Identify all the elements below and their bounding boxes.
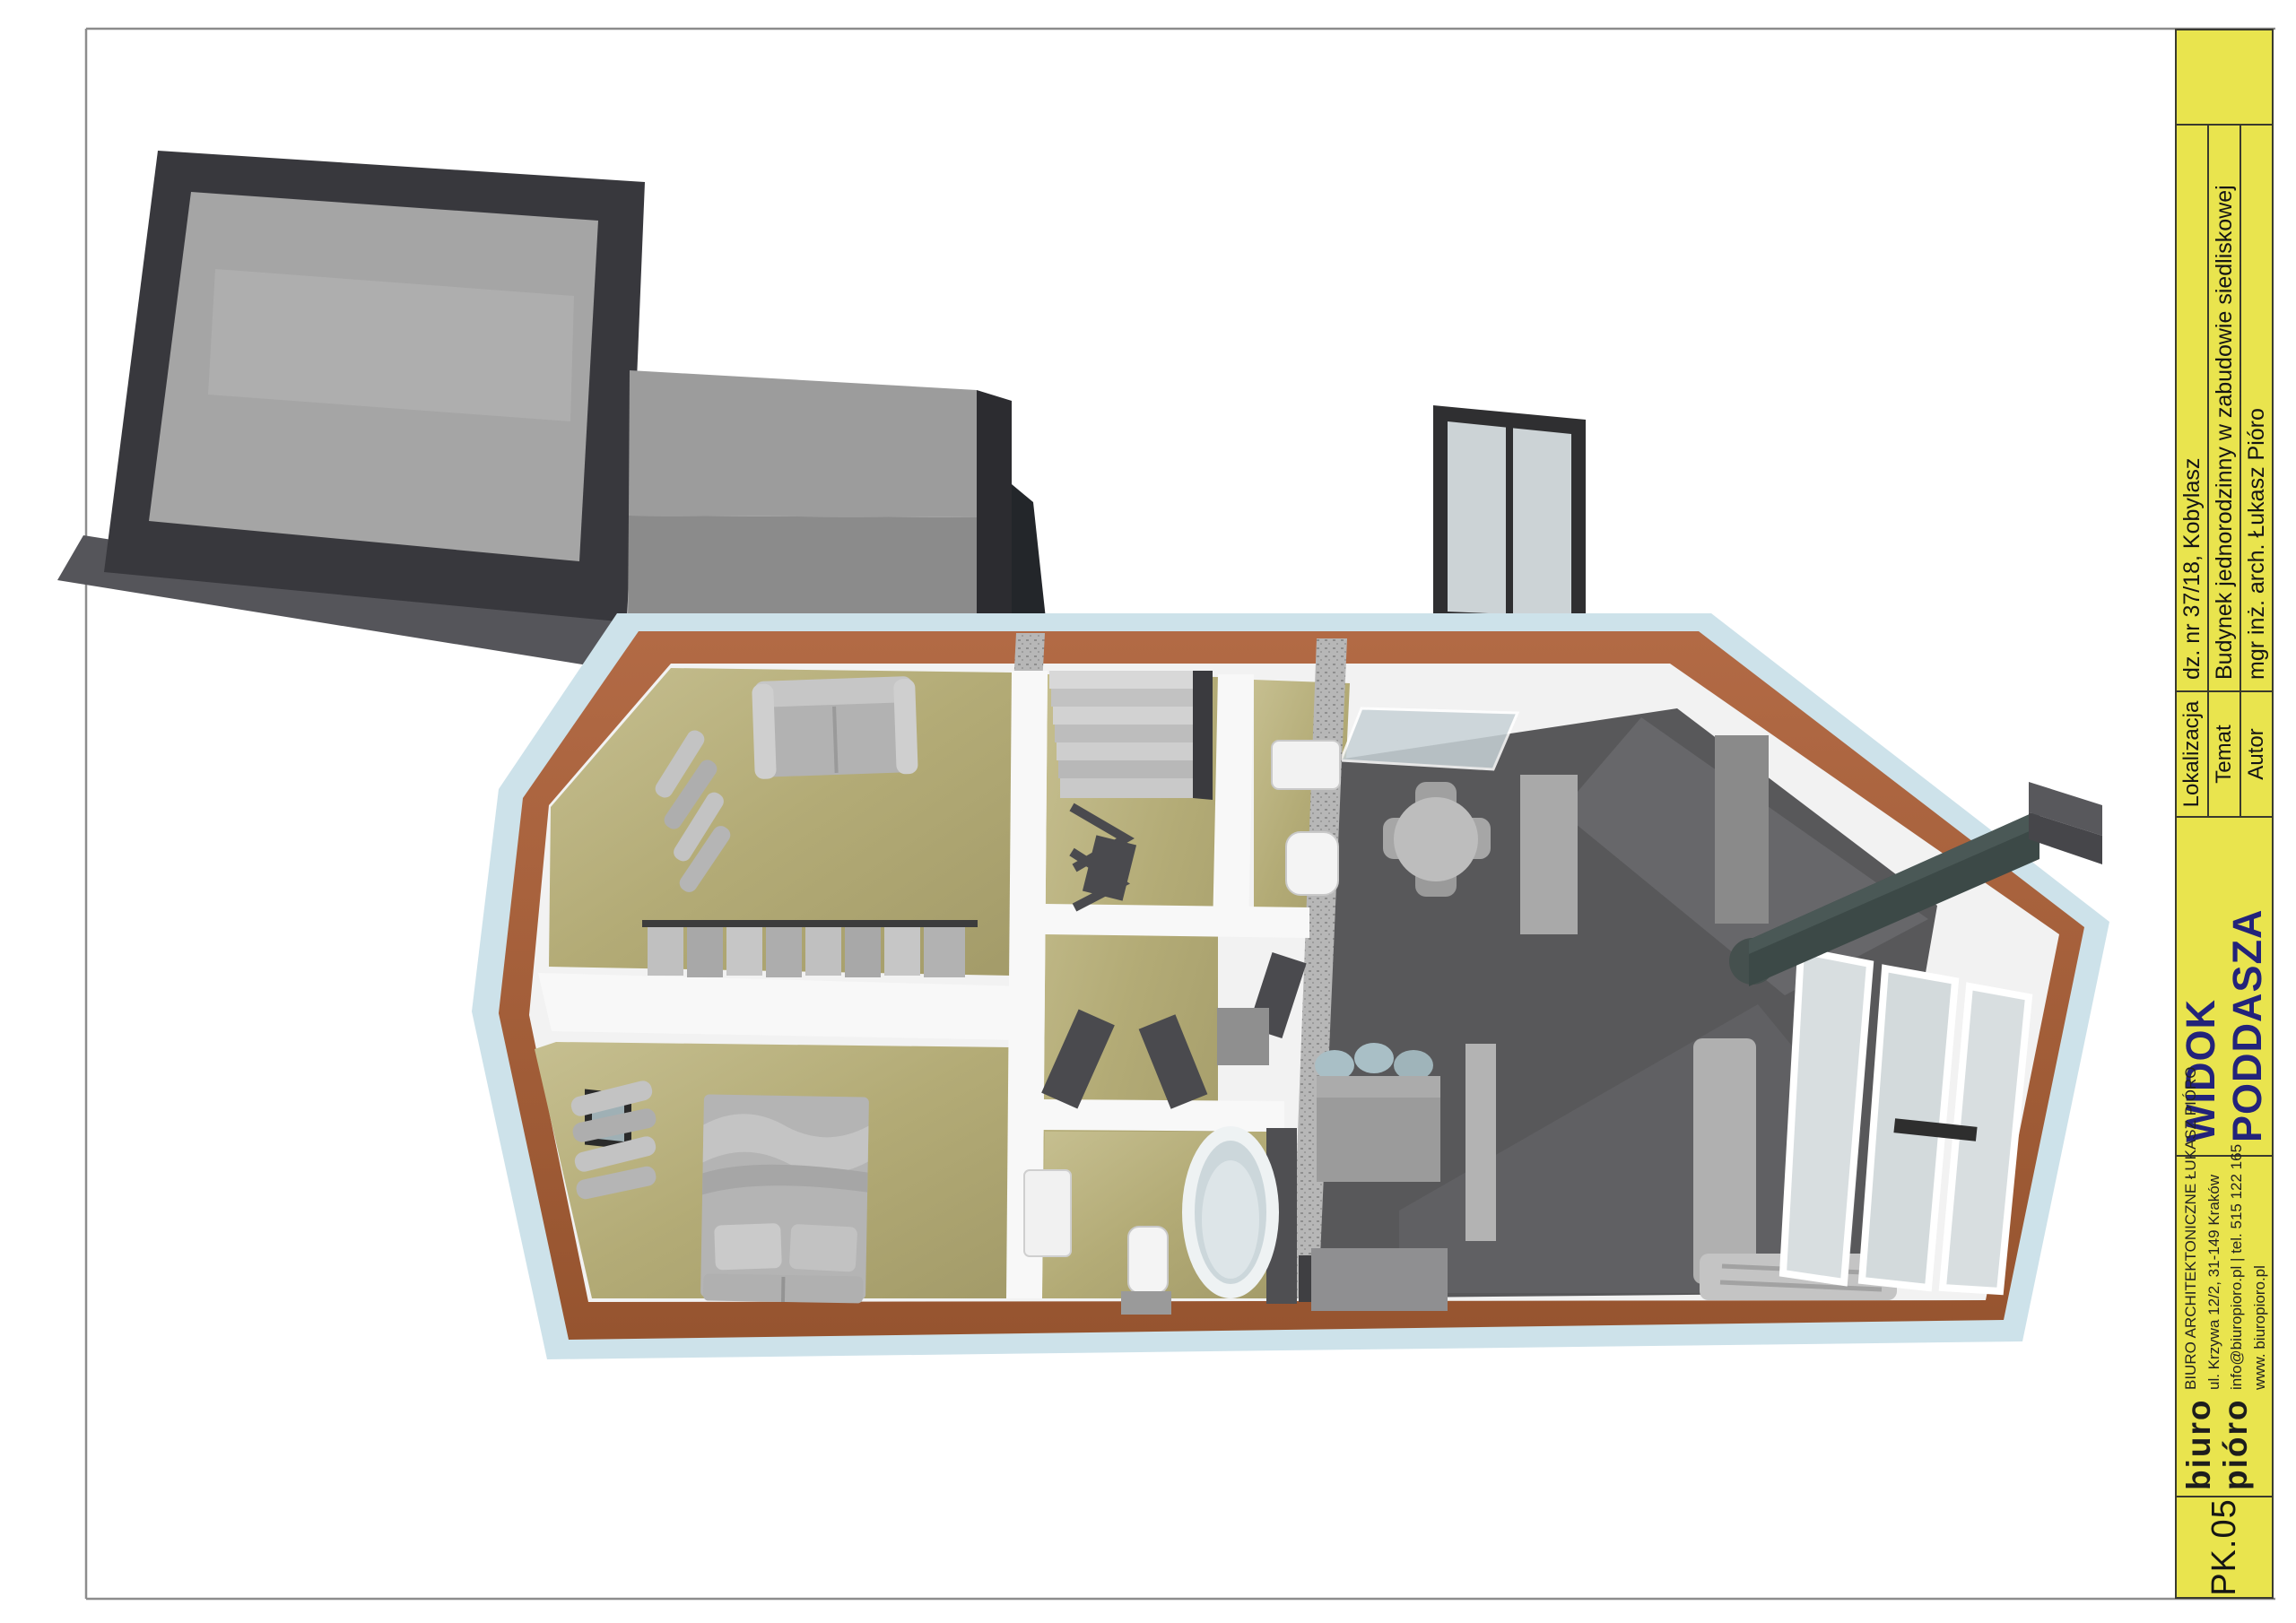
- field-label: Lokalizacja: [2177, 690, 2207, 816]
- loveseat-sofa: [752, 676, 918, 779]
- field-row-autor: Autor mgr inż. arch. Łukasz Pióro: [2241, 126, 2272, 816]
- office-address: BIURO ARCHITEKTONICZNE ŁUKASZ PIÓRO ul. …: [2179, 1160, 2271, 1390]
- logo-line-1: biuro: [2180, 1392, 2217, 1490]
- kitchen-rug: [1311, 1248, 1448, 1311]
- clothes-rack-long: [642, 920, 978, 977]
- fields-table: Lokalizacja dz. nr 37/18, Kobylasz Temat…: [2177, 124, 2272, 816]
- logo-line-2: pióro: [2217, 1392, 2254, 1490]
- washbasin: [1024, 1170, 1071, 1256]
- field-label: Temat: [2209, 690, 2239, 816]
- office-contact: info@biuropioro.pl | tel. 515 122 165: [2225, 1160, 2248, 1390]
- glass-floor-panel: [1341, 708, 1518, 769]
- office-street: ul. Krzywa 12/2, 31-149 Kraków: [2203, 1160, 2226, 1390]
- roof-edge-strip: [977, 390, 1012, 617]
- field-label: Autor: [2241, 690, 2272, 816]
- biuro-pioro-logo: biuro pióro: [2180, 1392, 2254, 1490]
- office-name: BIURO ARCHITEKTONICZNE ŁUKASZ PIÓRO: [2179, 1160, 2203, 1390]
- gable-window: [1433, 405, 1586, 629]
- roof-side-wall-upper: [629, 370, 977, 517]
- sideboard: [1520, 775, 1578, 934]
- hall-cabinet: [1217, 1008, 1269, 1065]
- field-row-temat: Temat Budynek jednorodzinny w zabudowie …: [2209, 126, 2241, 816]
- roof-glass-shine: [208, 269, 574, 421]
- field-value: mgr inż. arch. Łukasz Pióro: [2241, 126, 2272, 690]
- drawing-canvas: [0, 0, 2296, 1623]
- glazed-wall: [1783, 950, 2029, 1291]
- sheet-code: PK.05: [2205, 1498, 2244, 1596]
- roof-side-wall-lower: [628, 516, 977, 621]
- wall-art-panel: [1715, 735, 1769, 924]
- double-bed: [700, 1094, 869, 1303]
- title-block: PK.05 biuro pióro BIURO ARCHITEKTONICZNE…: [2175, 29, 2274, 1599]
- empty-cell: [2177, 30, 2272, 124]
- kitchen-tall-unit: [1465, 1044, 1496, 1241]
- sheet-code-cell: PK.05: [2177, 1496, 2272, 1597]
- floor-plan: [472, 613, 2109, 1359]
- office-website: www. biuropioro.pl: [2248, 1160, 2272, 1390]
- roof-block: [57, 151, 1046, 667]
- field-value: Budynek jednorodzinny w zabudowie siedli…: [2209, 126, 2239, 690]
- bath-toilet: [1128, 1227, 1168, 1293]
- office-cell: biuro pióro BIURO ARCHITEKTONICZNE ŁUKAS…: [2177, 1155, 2272, 1496]
- drawing-sheet: PK.05 biuro pióro BIURO ARCHITEKTONICZNE…: [0, 0, 2296, 1623]
- roof-brace: [1012, 484, 1046, 619]
- field-row-lokalizacja: Lokalizacja dz. nr 37/18, Kobylasz: [2177, 126, 2209, 816]
- field-value: dz. nr 37/18, Kobylasz: [2177, 126, 2207, 690]
- wc-sink: [1272, 741, 1340, 789]
- dining-table: [1394, 797, 1478, 881]
- wc-toilet: [1286, 832, 1338, 895]
- bath-shelf: [1121, 1291, 1171, 1315]
